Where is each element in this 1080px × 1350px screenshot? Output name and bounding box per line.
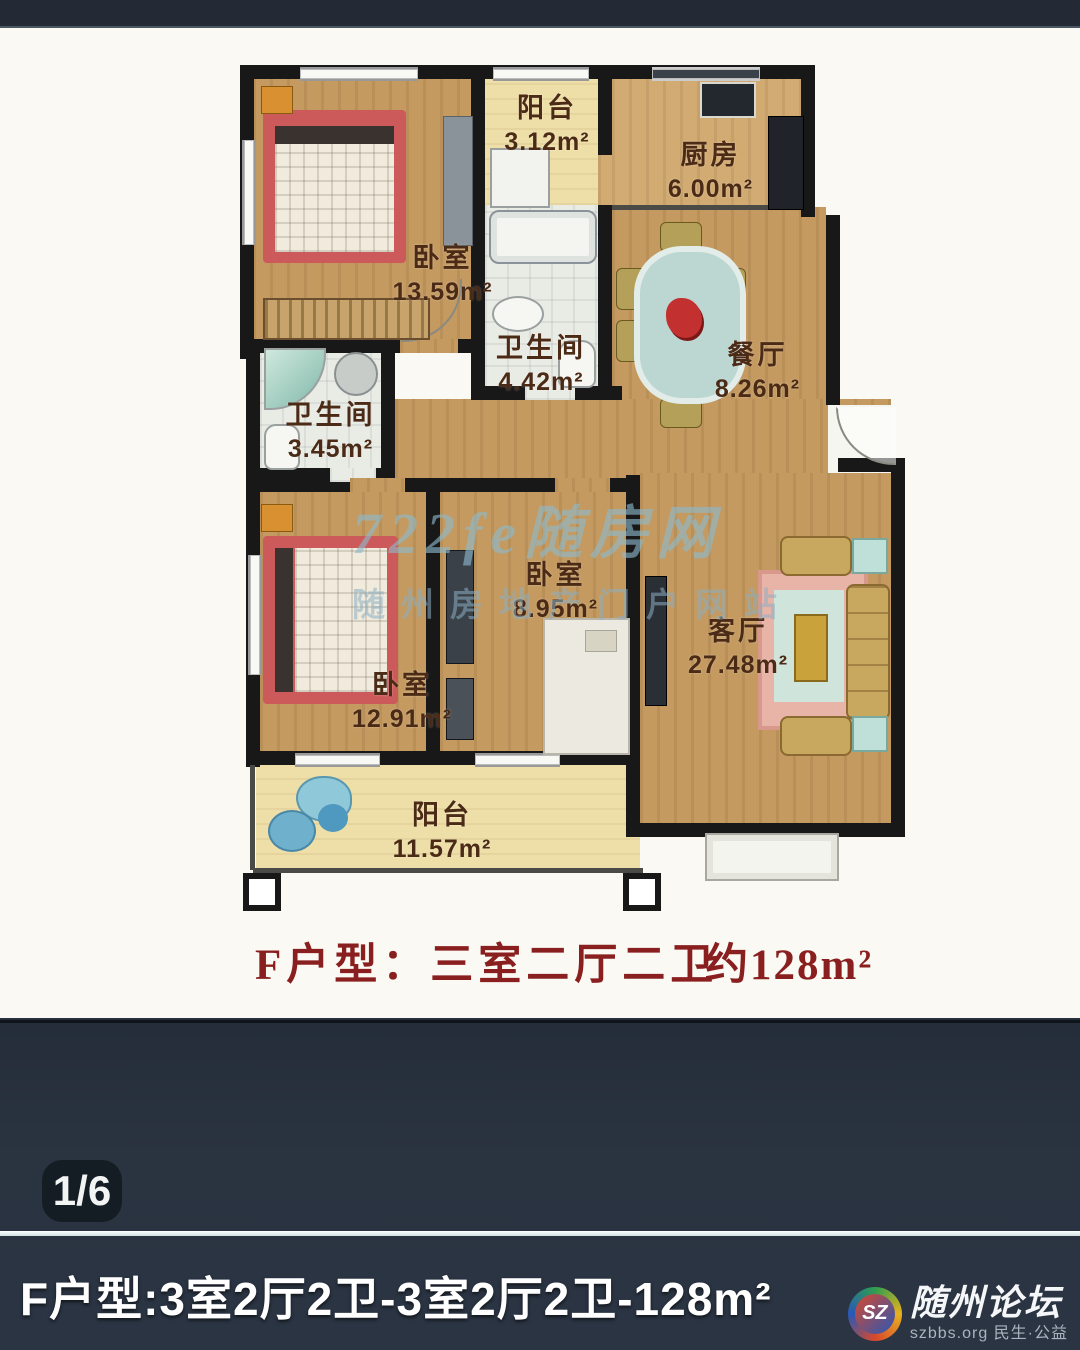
room-label-bedroom-1: 卧室 13.59m² (370, 243, 515, 307)
window (248, 555, 262, 675)
room-label-bath-2: 卫生间 3.45m² (268, 400, 393, 464)
balcony-rail (250, 765, 255, 870)
bed-pillows (275, 126, 394, 144)
plan-title-area: 约128m² (705, 930, 873, 992)
side-table (852, 538, 888, 574)
door-gap (555, 478, 610, 492)
room-label-balcony-bottom: 阳台 11.57m² (382, 800, 502, 864)
plan-title-prefix: F户型： (255, 942, 430, 989)
status-bar (0, 0, 1080, 28)
room-label-bedroom-3: 卧室 12.91m² (342, 670, 462, 734)
room-label-bath-1: 卫生间 4.42m² (476, 333, 606, 397)
kitchen-sink (700, 82, 756, 118)
window (493, 67, 589, 81)
sink (334, 352, 378, 396)
door-gap (598, 155, 612, 205)
room-label-kitchen: 厨房 6.00m² (648, 140, 773, 204)
nightstand (261, 504, 293, 532)
forum-logo-monogram: SZ (855, 1294, 895, 1334)
wall-segment (826, 215, 840, 405)
plan-title-value: 三室二厅二卫 (430, 942, 718, 989)
balcony-rail (253, 868, 643, 873)
kitchen-window (652, 67, 760, 81)
wardrobe (446, 550, 474, 664)
table-flowers (666, 298, 702, 338)
window (242, 140, 256, 245)
sofa (846, 584, 890, 720)
window (475, 753, 560, 767)
bay-window (705, 833, 839, 881)
floorplan-photo[interactable]: 卧室 13.59m² 阳台 3.12m² 厨房 6.00m² 卫生间 4.42m… (0, 28, 1080, 1018)
divider-line (0, 1231, 1080, 1236)
page-indicator-badge: 1/6 (42, 1160, 122, 1222)
armchair (780, 536, 852, 576)
plan-title: F户型：三室二厅二卫 (255, 930, 718, 992)
window (300, 67, 418, 81)
forum-logo: SZ 随州论坛 szbbs.org 民生·公益 (848, 1285, 1068, 1342)
room-label-dining: 餐厅 8.26m² (700, 340, 815, 404)
plant (318, 804, 348, 832)
plant (268, 810, 316, 852)
side-table (852, 716, 888, 752)
image-caption: F户型:3室2厅2卫-3室2厅2卫-128m² (20, 1263, 860, 1329)
room-label-bedroom-2: 卧室 8.95m² (498, 560, 613, 624)
floor-hall (395, 399, 891, 479)
door-gap (350, 478, 405, 492)
tv-cabinet (645, 576, 667, 706)
bed-pillow (585, 630, 617, 652)
column (623, 873, 661, 911)
wall-segment (891, 458, 905, 837)
room-label-balcony-top: 阳台 3.12m² (492, 93, 602, 157)
bed-blanket (275, 144, 394, 252)
forum-logo-icon: SZ (848, 1287, 902, 1341)
room-label-living: 客厅 27.48m² (668, 616, 808, 680)
forum-logo-title: 随州论坛 (910, 1285, 1068, 1321)
window (295, 753, 380, 767)
image-viewer-screen: 卧室 13.59m² 阳台 3.12m² 厨房 6.00m² 卫生间 4.42m… (0, 0, 1080, 1350)
washing-machine (490, 148, 550, 208)
column (243, 873, 281, 911)
desk (443, 116, 473, 246)
forum-logo-subtitle: szbbs.org 民生·公益 (910, 1326, 1068, 1342)
kitchen-appliances (768, 116, 804, 210)
nightstand (261, 86, 293, 114)
armchair (780, 716, 852, 756)
viewer-bottom-panel: 1/6 F户型:3室2厅2卫-3室2厅2卫-128m² SZ 随州论坛 szbb… (0, 1020, 1080, 1350)
wall-segment (246, 345, 260, 478)
bed-pillows (275, 548, 293, 692)
